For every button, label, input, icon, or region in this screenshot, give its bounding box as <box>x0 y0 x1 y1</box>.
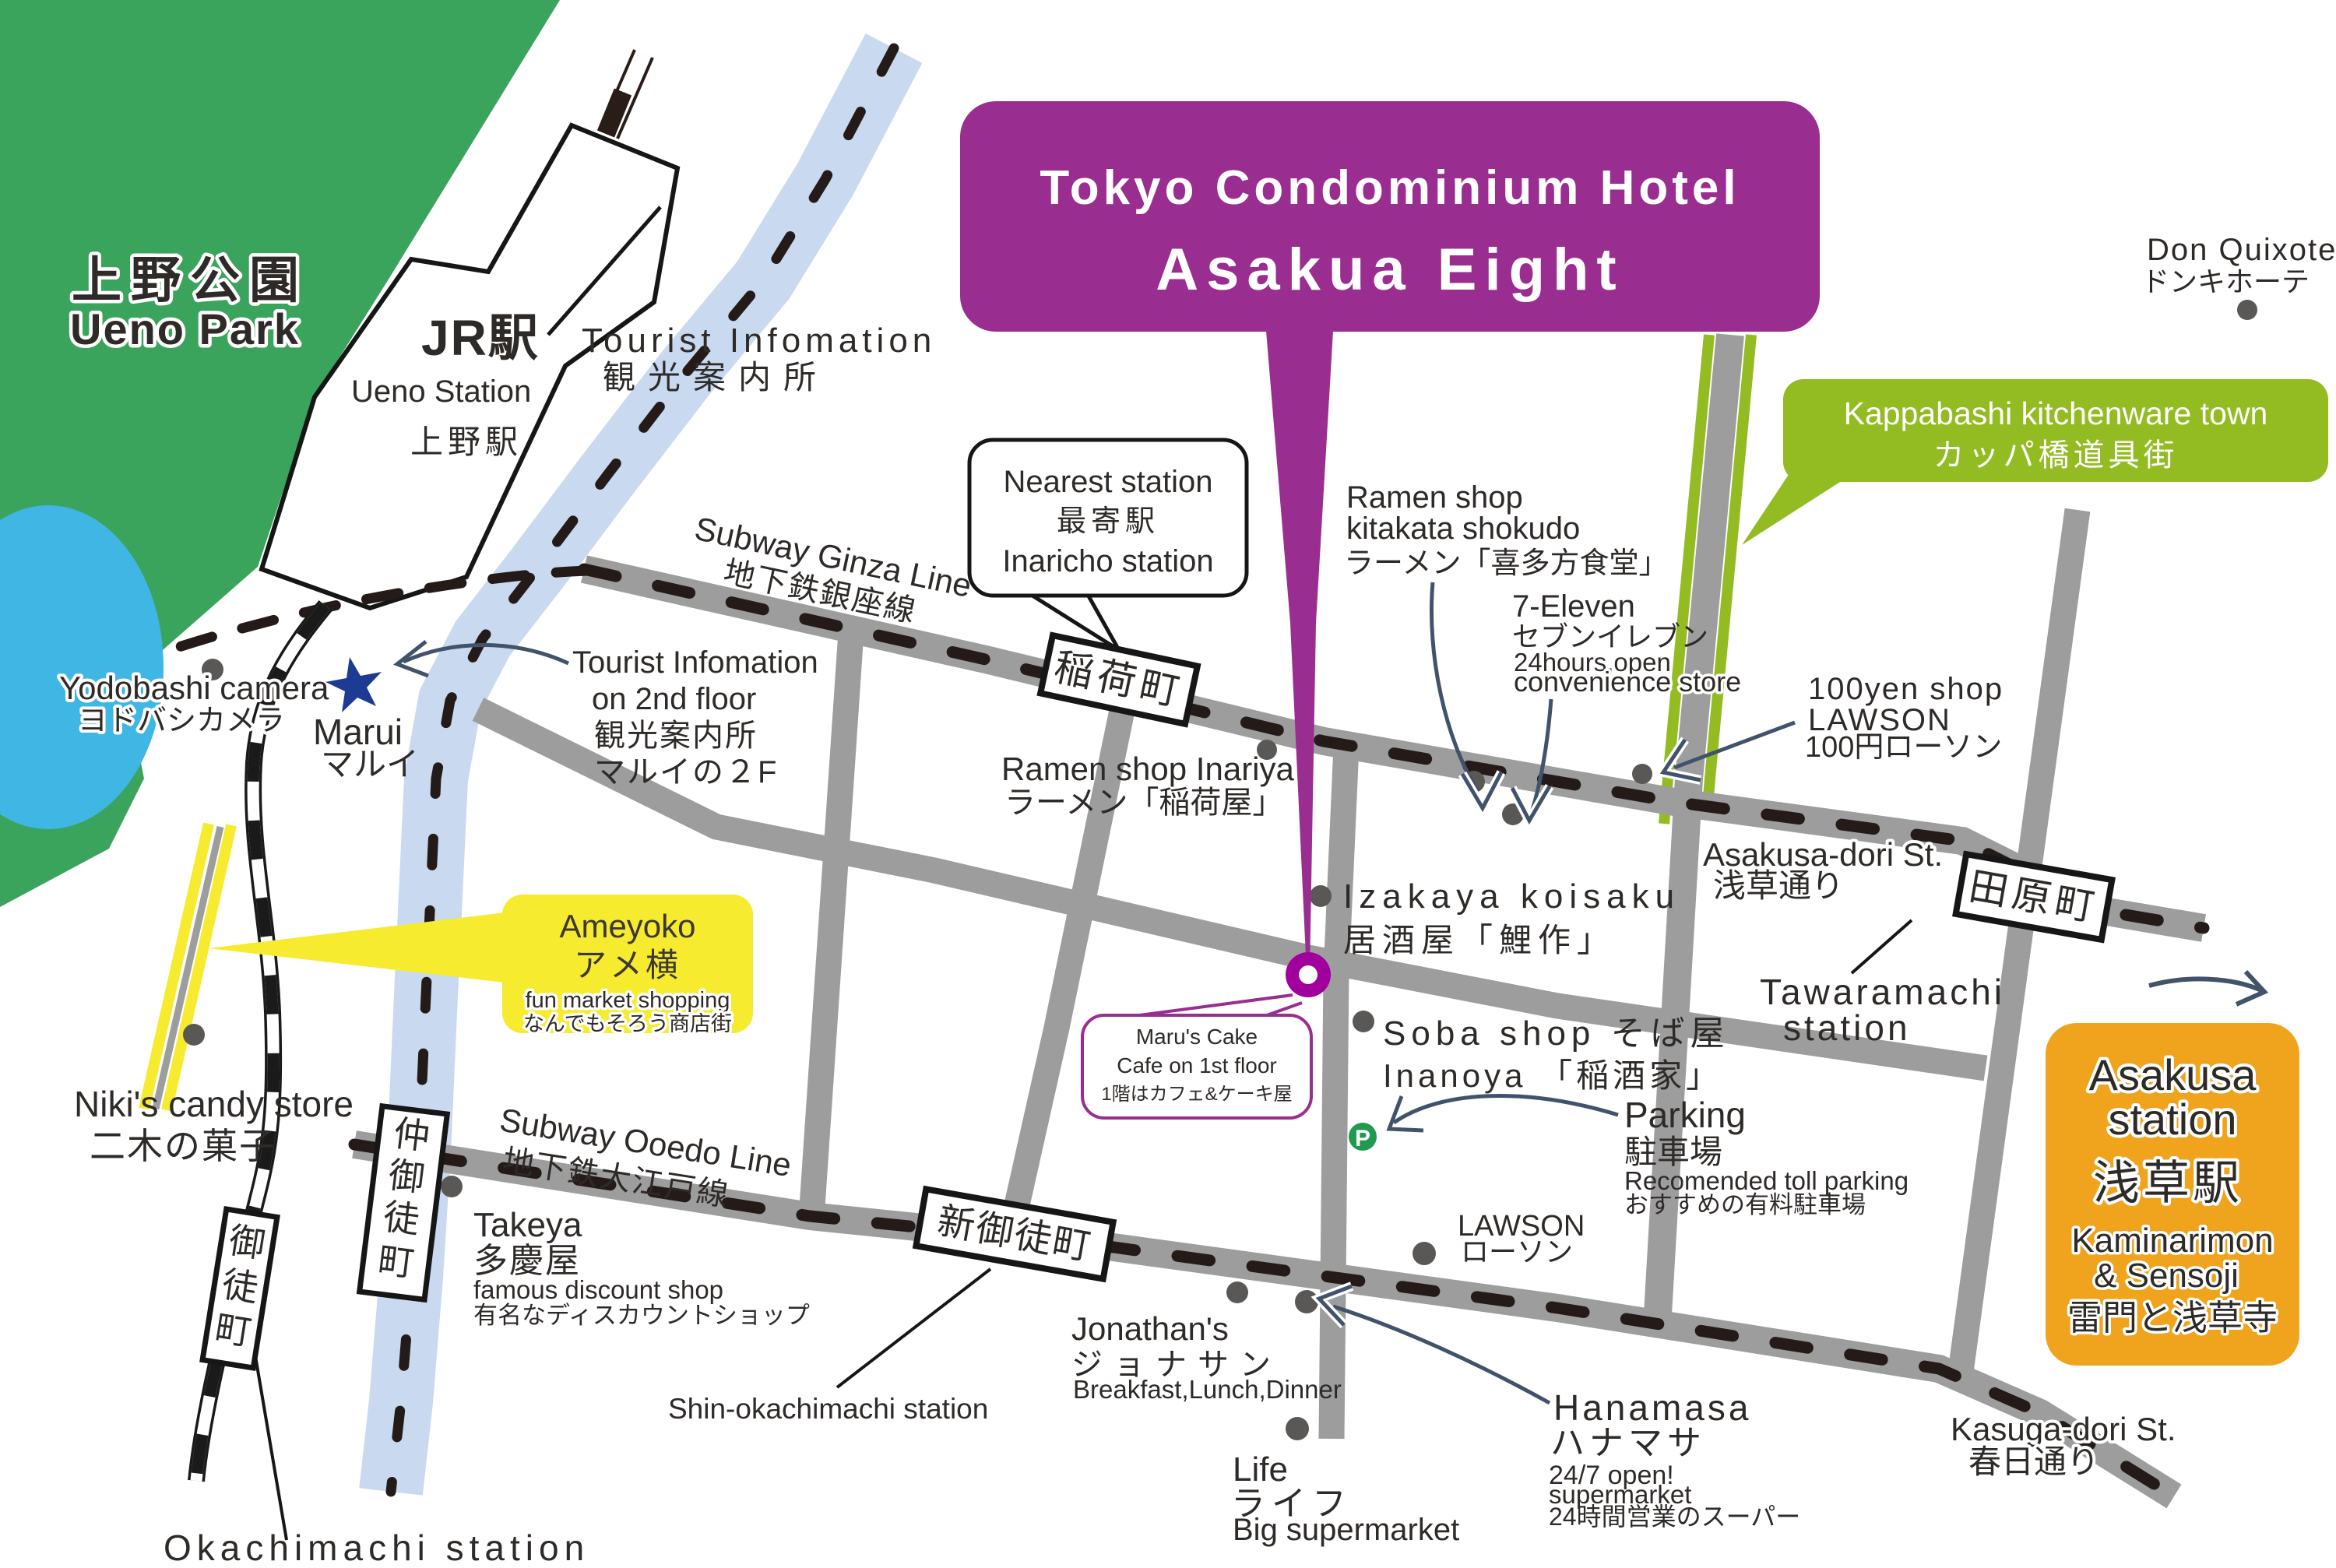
svg-text:Izakaya koisaku: Izakaya koisaku <box>1343 877 1680 916</box>
svg-text:Shin-okachimachi station: Shin-okachimachi station <box>668 1393 988 1425</box>
svg-text:Ueno Park: Ueno Park <box>70 304 300 353</box>
svg-text:1階はカフェ&ケーキ屋: 1階はカフェ&ケーキ屋 <box>1101 1084 1292 1105</box>
svg-text:御: 御 <box>227 1219 269 1265</box>
svg-text:観光案内所: 観光案内所 <box>594 719 758 753</box>
svg-text:station: station <box>1783 1007 1911 1048</box>
svg-text:Yodobashi camera: Yodobashi camera <box>59 670 329 706</box>
svg-text:Tourist Infomation: Tourist Infomation <box>572 645 818 680</box>
svg-text:町: 町 <box>376 1239 417 1284</box>
svg-text:on 2nd floor: on 2nd floor <box>592 682 756 716</box>
svg-text:徒: 徒 <box>382 1196 422 1240</box>
svg-text:Parking: Parking <box>1624 1095 1746 1135</box>
svg-text:& Sensoji: & Sensoji <box>2094 1257 2239 1295</box>
svg-text:Kaminarimon: Kaminarimon <box>2071 1222 2273 1260</box>
svg-text:Don Quixote: Don Quixote <box>2147 233 2336 267</box>
svg-text:上野駅: 上野駅 <box>410 424 522 460</box>
svg-text:上野公園: 上野公園 <box>72 252 308 308</box>
svg-text:ヨドバシカメラ: ヨドバシカメラ <box>78 705 285 737</box>
svg-text:100yen shop: 100yen shop <box>1808 672 2004 706</box>
svg-text:マルイの２F: マルイの２F <box>594 755 778 789</box>
svg-text:Tourist Infomation: Tourist Infomation <box>582 322 936 360</box>
svg-text:雷門と浅草寺: 雷門と浅草寺 <box>2067 1298 2278 1338</box>
svg-text:Asakua Eight: Asakua Eight <box>1156 237 1624 303</box>
svg-text:Ramen shop Inariya: Ramen shop Inariya <box>1001 751 1295 787</box>
svg-text:Asakusa: Asakusa <box>2089 1050 2257 1099</box>
svg-text:P: P <box>1355 1126 1370 1151</box>
svg-text:ラーメン「喜多方食堂」: ラーメン「喜多方食堂」 <box>1344 547 1668 580</box>
svg-text:居酒屋「鯉作」: 居酒屋「鯉作」 <box>1343 922 1616 958</box>
svg-text:徒: 徒 <box>220 1264 262 1310</box>
svg-text:Ameyoko: Ameyoko <box>559 908 695 944</box>
svg-text:Inanoya 「稲酒家」: Inanoya 「稲酒家」 <box>1383 1057 1722 1094</box>
svg-text:Niki's candy store: Niki's candy store <box>74 1084 354 1124</box>
svg-text:浅草通り: 浅草通り <box>1713 867 1844 904</box>
svg-text:Life: Life <box>1233 1450 1288 1489</box>
svg-text:アメ横: アメ横 <box>574 947 681 983</box>
svg-text:観光案内所: 観光案内所 <box>603 359 829 396</box>
svg-text:JR駅: JR駅 <box>421 310 540 366</box>
svg-text:Maru's Cake: Maru's Cake <box>1136 1025 1258 1049</box>
svg-text:Inaricho station: Inaricho station <box>1002 544 1213 578</box>
svg-text:町: 町 <box>213 1307 255 1353</box>
svg-text:カッパ橋道具街: カッパ橋道具街 <box>1933 438 2179 473</box>
svg-text:Cafe on 1st floor: Cafe on 1st floor <box>1117 1053 1276 1078</box>
svg-text:Kappabashi kitchenware town: Kappabashi kitchenware town <box>1844 396 2268 431</box>
svg-text:Kasuga-dori St.: Kasuga-dori St. <box>1951 1411 2176 1447</box>
svg-text:最寄駅: 最寄駅 <box>1057 505 1159 538</box>
svg-text:ハナマサ: ハナマサ <box>1550 1424 1706 1462</box>
svg-text:fun market shopping: fun market shopping <box>526 988 730 1013</box>
svg-text:二木の菓子: 二木の菓子 <box>90 1126 276 1166</box>
svg-text:famous discount shop: famous discount shop <box>473 1275 723 1304</box>
svg-text:なんでもそろう商店街: なんでもそろう商店街 <box>523 1012 732 1035</box>
svg-text:100円ローソン: 100円ローソン <box>1805 731 2002 764</box>
svg-text:Soba shop そば屋: Soba shop そば屋 <box>1383 1014 1730 1053</box>
svg-text:Okachimachi station: Okachimachi station <box>164 1528 589 1568</box>
svg-text:駐車場: 駐車場 <box>1624 1134 1722 1170</box>
svg-text:春日通り: 春日通り <box>1968 1443 2099 1480</box>
svg-text:マルイ: マルイ <box>321 746 419 782</box>
svg-text:ラーメン「稲荷屋」: ラーメン「稲荷屋」 <box>1004 786 1283 820</box>
svg-text:Ramen shop: Ramen shop <box>1346 480 1523 515</box>
svg-text:Breakfast,Lunch,Dinner: Breakfast,Lunch,Dinner <box>1073 1375 1342 1404</box>
svg-text:Hanamasa: Hanamasa <box>1553 1387 1751 1428</box>
svg-text:Nearest station: Nearest station <box>1003 465 1212 499</box>
svg-text:浅草駅: 浅草駅 <box>2093 1157 2243 1209</box>
svg-text:24時間営業のスーパー: 24時間営業のスーパー <box>1549 1503 1800 1531</box>
svg-text:Takeya: Takeya <box>473 1206 582 1244</box>
svg-text:convenience store: convenience store <box>1514 666 1741 698</box>
svg-text:station: station <box>2109 1095 2237 1144</box>
svg-text:Tawaramachi: Tawaramachi <box>1760 972 2005 1012</box>
svg-text:ローソン: ローソン <box>1461 1236 1573 1267</box>
svg-text:Ueno Station: Ueno Station <box>351 374 531 409</box>
svg-text:7-Eleven: 7-Eleven <box>1512 589 1635 624</box>
svg-text:Jonathan's: Jonathan's <box>1071 1310 1229 1347</box>
svg-text:Tokyo Condominium Hotel: Tokyo Condominium Hotel <box>1040 161 1740 215</box>
svg-text:御: 御 <box>386 1155 427 1199</box>
svg-text:有名なディスカウントショップ: 有名なディスカウントショップ <box>473 1302 810 1329</box>
svg-text:Big supermarket: Big supermarket <box>1233 1513 1459 1547</box>
svg-text:kitakata shokudo: kitakata shokudo <box>1346 512 1580 546</box>
svg-text:ドンキホーテ: ドンキホーテ <box>2141 265 2310 297</box>
svg-text:おすすめの有料駐車場: おすすめの有料駐車場 <box>1624 1191 1866 1218</box>
svg-text:多慶屋: 多慶屋 <box>473 1242 581 1280</box>
svg-text:仲: 仲 <box>392 1113 432 1157</box>
